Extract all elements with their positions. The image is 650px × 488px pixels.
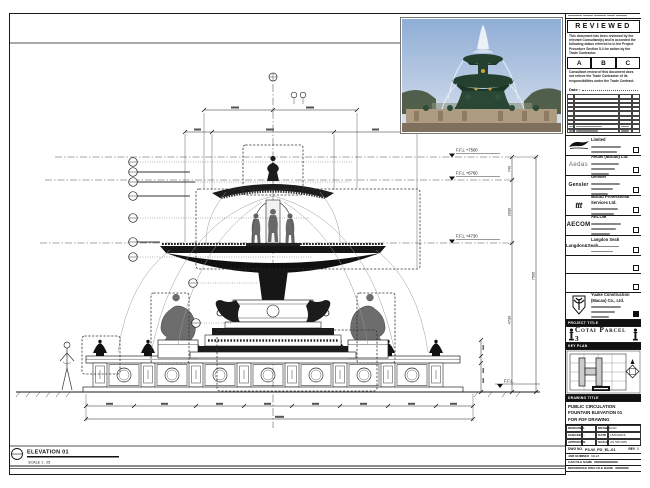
drawing-title-line-2: FOUNTAIN ELEVATION 01 bbox=[568, 410, 639, 417]
consultant-checkbox[interactable] bbox=[633, 207, 639, 213]
key-plan bbox=[566, 350, 641, 395]
dwg-no-row: DWG NO. P3-W_FD_EL-01 REV 0 bbox=[566, 446, 641, 454]
drawing-title-text: PUBLIC CIRCULATION FOUNTAIN ELEVATION 01… bbox=[566, 402, 641, 425]
level-markers: F.F.L +7500 F.F.L +6760 F.F.L +4730 F.F.… bbox=[449, 148, 540, 389]
drawn-label: DRAWN bbox=[596, 425, 608, 432]
title-block: REVIEWED This document has been reviewed… bbox=[565, 14, 641, 475]
date-value: 15/04/2016 bbox=[608, 432, 641, 439]
review-status-options: A B C bbox=[567, 57, 640, 69]
review-stamp-title: REVIEWED bbox=[567, 20, 640, 33]
consultant-checkbox[interactable] bbox=[633, 227, 639, 233]
checked-value: - bbox=[582, 432, 596, 439]
drawing-title-header: DRAWING TITLE bbox=[566, 395, 641, 402]
approved-label: APPROVED bbox=[566, 439, 582, 446]
dwg-no-label: DWG NO. bbox=[568, 447, 583, 451]
project-name-row: Cotai Parcel 3 bbox=[566, 327, 641, 343]
consultant-checkbox[interactable] bbox=[633, 167, 639, 173]
consultant-checkbox[interactable] bbox=[633, 284, 639, 290]
scale-value: AS SHOWN bbox=[608, 439, 641, 446]
status-option-b[interactable]: B bbox=[591, 57, 615, 69]
project-title-header: PROJECT TITLE bbox=[566, 320, 641, 327]
rev-value: 0 bbox=[637, 447, 639, 451]
status-option-a[interactable]: A bbox=[567, 57, 591, 69]
rev-label: REV bbox=[628, 447, 635, 451]
level-4730-label: F.F.L +4730 bbox=[456, 234, 478, 239]
level-0-label: F.F.L. bbox=[504, 379, 514, 384]
dim-4730: 4730 bbox=[507, 315, 512, 324]
consultant-name: AECOM bbox=[591, 216, 606, 220]
consultant-row-aecom: AECOM AECOM bbox=[566, 216, 641, 236]
dwg-no-value: P3-W_FD_EL-01 bbox=[585, 447, 616, 452]
fountain-photo-illustration bbox=[402, 19, 561, 132]
drawn-value: CAD bbox=[608, 425, 641, 432]
contractor-emblem-icon bbox=[566, 295, 591, 316]
job-number-value: 31123 bbox=[591, 454, 599, 458]
consultant-row-empty-2 bbox=[566, 274, 641, 293]
consultant-checkbox[interactable] bbox=[633, 265, 639, 271]
scale-label: SCALE bbox=[596, 439, 608, 446]
review-stamp-paragraph-2: Consultant review of this document does … bbox=[567, 69, 640, 85]
consultant-name: Langdon Seah bbox=[591, 237, 619, 242]
revision-table bbox=[567, 94, 640, 133]
seated-figure-right bbox=[348, 294, 388, 358]
consultant-checkbox[interactable] bbox=[633, 247, 639, 253]
venetian-orient-logo-icon bbox=[566, 140, 591, 151]
consultant-row-gensler: Gensler Gensler bbox=[566, 176, 641, 196]
seated-figure-left bbox=[158, 294, 198, 358]
contractor-row: Yuake Construction (Macau) Co., Ltd. bbox=[566, 293, 641, 320]
project-name: Cotai Parcel 3 bbox=[575, 327, 632, 343]
gensler-logo: Gensler bbox=[566, 182, 591, 188]
reference-file-label: REFERENCE DWG FILE NAME bbox=[568, 466, 613, 470]
consultant-name: Venetian Orient Limited bbox=[591, 136, 621, 143]
aecom-logo: AECOM bbox=[566, 222, 591, 228]
dim-7500: 7500 bbox=[531, 271, 536, 280]
review-date-field[interactable] bbox=[582, 87, 638, 91]
drawing-title-line-3: FOR FDF DRAWING bbox=[568, 417, 639, 424]
level-6760-label: F.F.L +6760 bbox=[456, 171, 478, 176]
job-number-label: JOB NUMBER bbox=[568, 454, 589, 458]
review-date-label: Date : bbox=[569, 87, 580, 92]
dim-2030: 2030 bbox=[507, 207, 512, 216]
ground-line bbox=[16, 392, 540, 397]
date-label: DATE bbox=[596, 432, 608, 439]
photo-basin bbox=[402, 105, 561, 132]
credits-grid: DESIGNED - DRAWN CAD CHECKED - DATE 15/0… bbox=[566, 425, 641, 446]
key-plan-drawing bbox=[566, 350, 641, 394]
north-star-icon bbox=[626, 359, 639, 378]
contractor-checkbox[interactable] bbox=[633, 311, 639, 317]
designed-value: - bbox=[582, 425, 596, 432]
elevation-title: ELEVATION 01 SCALE 1 : 25 bbox=[12, 449, 120, 465]
drawing-sheet: { "stamp": { "title": "REVIEWED", "para1… bbox=[0, 0, 650, 488]
review-stamp: REVIEWED This document has been reviewed… bbox=[566, 19, 641, 136]
consultant-row-aedas: Aedas Aedas (Macau) Ltd. bbox=[566, 156, 641, 176]
elevation-scale: SCALE 1 : 25 bbox=[28, 461, 50, 465]
consultant-name: Macau Professional Services Ltd. bbox=[591, 196, 629, 205]
bottom-dimensions bbox=[84, 394, 475, 421]
scale-figure bbox=[60, 342, 74, 390]
mps-logo: ttt bbox=[566, 201, 591, 210]
wall-lamp bbox=[93, 340, 107, 356]
dim-740: 740 bbox=[507, 165, 512, 172]
status-option-c[interactable]: C bbox=[616, 57, 640, 69]
lamp-ornament-icon bbox=[632, 328, 639, 341]
aedas-logo: Aedas bbox=[566, 162, 591, 168]
reference-photo bbox=[400, 17, 563, 134]
level-7500-label: F.F.L +7500 bbox=[456, 148, 478, 153]
langdon-seah-logo: Langdon&Seah bbox=[566, 243, 591, 248]
approved-value: - bbox=[582, 439, 596, 446]
reference-file-row: REFERENCE DWG FILE NAME bbox=[566, 466, 641, 472]
elevation-label: ELEVATION 01 bbox=[27, 450, 69, 456]
consultant-row-venetian: Venetian Orient Limited bbox=[566, 136, 641, 156]
checked-label: CHECKED bbox=[566, 432, 582, 439]
review-date-row: Date : bbox=[567, 84, 640, 94]
consultant-row-mps: ttt Macau Professional Services Ltd. bbox=[566, 196, 641, 216]
cad-file-label: CAD FILE NAME bbox=[568, 460, 592, 464]
designed-label: DESIGNED bbox=[566, 425, 582, 432]
consultant-name: Aedas (Macau) Ltd. bbox=[591, 156, 629, 160]
key-plan-header: KEY PLAN bbox=[566, 343, 641, 350]
review-stamp-paragraph-1: This document has been reviewed by the r… bbox=[567, 33, 640, 57]
consultant-name: Gensler bbox=[591, 176, 606, 180]
consultant-checkbox[interactable] bbox=[633, 147, 639, 153]
consultant-row-langdonseah: Langdon&Seah Langdon Seah bbox=[566, 236, 641, 256]
lamp-ornament-icon bbox=[568, 328, 575, 341]
drawing-title-line-1: PUBLIC CIRCULATION bbox=[568, 404, 639, 411]
contractor-name: Yuake Construction (Macau) Co., Ltd. bbox=[591, 293, 629, 303]
right-dimensions: 740 2030 4730 7500 bbox=[463, 155, 538, 394]
consultant-checkbox[interactable] bbox=[633, 187, 639, 193]
consultant-row-empty-1 bbox=[566, 256, 641, 274]
